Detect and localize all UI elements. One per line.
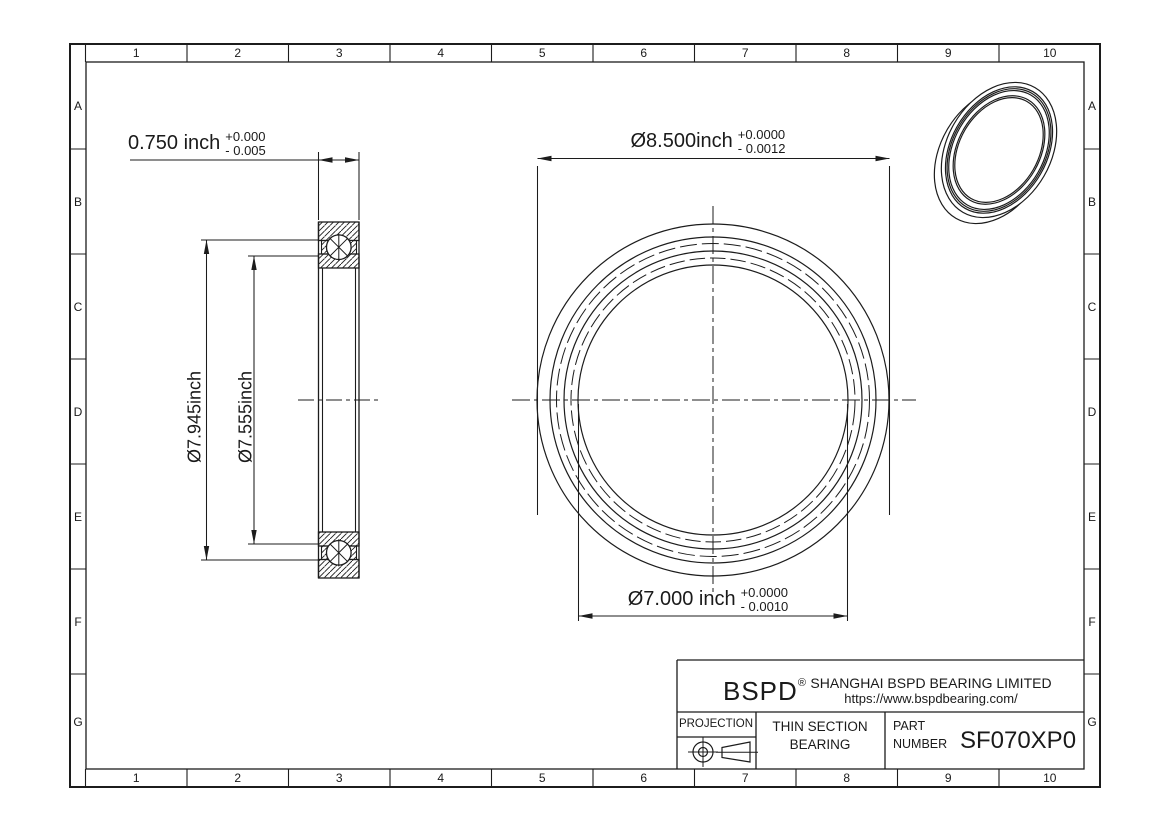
section-bottom-block [319,532,360,578]
grid-row-label-left: B [70,149,86,254]
bore-diameter-tolerance: +0.0000 - 0.0010 [741,586,789,613]
tolerance-plus: +0.0000 [738,128,786,142]
tolerance-minus: - 0.005 [225,144,265,158]
grid-col-label-top: 1 [86,44,188,62]
product-type-line2: BEARING [790,737,851,752]
grid-row-label-right: B [1084,149,1100,254]
section-width-value: 0.750 inch [128,132,220,155]
brand-name: BSPD [723,676,798,706]
bore-diameter-value: Ø7.000 inch [628,588,736,611]
grid-row-label-left: G [70,674,86,769]
outer-diameter-value: Ø8.500inch [631,130,733,153]
grid-row-label-right: E [1084,464,1100,569]
projection-label: PROJECTION [679,718,753,730]
dimension-arrows [204,157,359,560]
tolerance-plus: +0.0000 [741,586,789,600]
grid-col-label-bottom: 10 [999,769,1101,787]
grid-row-label-right: D [1084,359,1100,464]
grid-row-label-right: C [1084,254,1100,359]
grid-row-label-left: F [70,569,86,674]
grid-col-label-bottom: 7 [695,769,797,787]
registered-mark-icon: ® [798,677,807,689]
front-view [512,206,916,596]
grid-col-label-bottom: 9 [898,769,1000,787]
grid-col-label-bottom: 4 [390,769,492,787]
part-number-value: SF070XP0 [960,727,1076,755]
grid-row-label-left: C [70,254,86,359]
company-name: SHANGHAI BSPD BEARING LIMITED [810,675,1051,691]
company-website: https://www.bspdbearing.com/ [844,691,1017,706]
grid-row-label-right: A [1084,62,1100,149]
section-top-block [319,222,360,268]
section-view [298,222,382,578]
product-type-line1: THIN SECTION [772,719,867,734]
outer-race-dimension: Ø7.945inch [185,371,206,463]
part-number-label-line1: PART [893,719,925,733]
grid-col-label-bottom: 1 [86,769,188,787]
brand-logo: BSPD® [723,676,807,707]
section-width-tolerance: +0.000 - 0.005 [225,130,265,157]
grid-col-label-top: 3 [289,44,391,62]
tolerance-minus: - 0.0012 [738,142,786,156]
grid-row-label-right: G [1084,674,1100,769]
grid-col-label-top: 4 [390,44,492,62]
grid-col-label-bottom: 6 [593,769,695,787]
grid-col-label-top: 5 [492,44,594,62]
drawing-sheet: 1 2 3 4 5 6 7 8 9 10 1 2 3 4 5 6 7 8 9 1… [0,0,1170,827]
grid-col-label-top: 8 [796,44,898,62]
grid-col-label-bottom: 5 [492,769,594,787]
section-width-dimension: 0.750 inch +0.000 - 0.005 [128,130,266,157]
grid-row-label-left: D [70,359,86,464]
grid-col-label-top: 6 [593,44,695,62]
tolerance-minus: - 0.0010 [741,600,789,614]
grid-row-label-left: E [70,464,86,569]
grid-col-label-top: 9 [898,44,1000,62]
part-number-label-line2: NUMBER [893,737,947,751]
outer-diameter-tolerance: +0.0000 - 0.0012 [738,128,786,155]
inner-race-dimension: Ø7.555inch [236,371,257,463]
grid-row-label-right: F [1084,569,1100,674]
grid-col-label-bottom: 2 [187,769,289,787]
section-dimensions [130,152,359,560]
grid-col-label-top: 2 [187,44,289,62]
grid-col-label-bottom: 8 [796,769,898,787]
isometric-view [911,62,1080,245]
tolerance-plus: +0.000 [225,130,265,144]
outer-diameter-dimension: Ø8.500inch +0.0000 - 0.0012 [631,128,786,155]
grid-row-label-left: A [70,62,86,149]
bore-diameter-dimension: Ø7.000 inch +0.0000 - 0.0010 [628,586,789,613]
grid-col-label-top: 10 [999,44,1101,62]
grid-col-label-bottom: 3 [289,769,391,787]
grid-col-label-top: 7 [695,44,797,62]
projection-symbol-icon [688,737,758,767]
